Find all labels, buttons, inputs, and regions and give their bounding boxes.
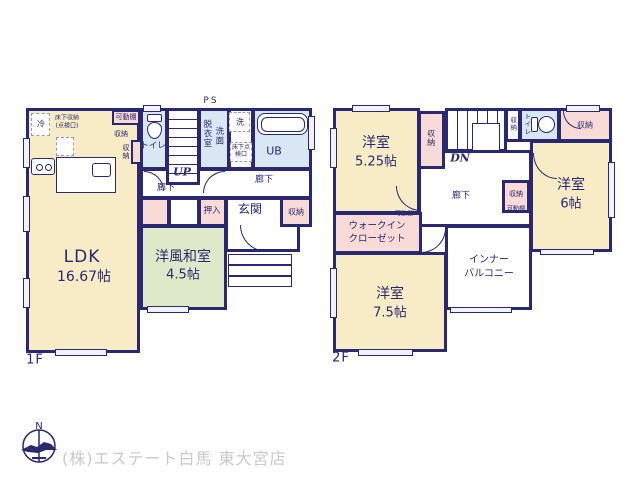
window — [308, 116, 315, 150]
hall-label: 廊下 — [255, 175, 273, 185]
wic-label-line2: クローゼット — [348, 235, 405, 246]
dressing-room-label: 脱衣室 — [201, 120, 211, 149]
balcony-label-line2: バルコニー — [464, 268, 514, 280]
window — [147, 306, 189, 313]
floorplan-image: PS 可動棚 収納 収納 トイレ UP 脱衣室 洗面 洗 床下点検口 UB 廊下… — [0, 0, 640, 480]
bathtub-icon — [257, 113, 308, 135]
oshiire-label: 押入 — [203, 207, 220, 217]
hatch-label: (点検口) — [56, 124, 79, 131]
room75-size: 7.5帖 — [373, 307, 407, 322]
closet-label: 収納 — [122, 144, 130, 160]
closet-label: 収納 — [114, 130, 128, 138]
entrance-step — [228, 265, 292, 276]
shelf-label: 可動棚 — [395, 212, 413, 219]
window — [23, 138, 30, 168]
closet-label: 収納 — [426, 129, 435, 147]
closet-label: 収納 — [508, 117, 515, 132]
window — [23, 278, 30, 308]
underfloor-storage-label: 床下収納 — [55, 116, 79, 123]
room525-name: 洋室 — [362, 135, 390, 151]
ldk-size: 16.67帖 — [57, 269, 111, 285]
closet-label: 収納 — [509, 190, 523, 198]
window — [608, 162, 615, 218]
window — [330, 128, 337, 168]
window — [540, 249, 594, 255]
stove-icon — [31, 158, 55, 175]
compass-icon: N — [18, 420, 60, 466]
stairs-down — [445, 108, 507, 152]
washer-label: 洗 — [236, 117, 244, 126]
hall-label: 廊下 — [157, 183, 175, 193]
hall-label: 廊下 — [452, 191, 470, 201]
window — [358, 349, 413, 356]
refrigerator-label: 冷 — [37, 119, 45, 128]
toilet-tank-icon — [531, 117, 538, 132]
window — [143, 105, 161, 112]
ldk-name: LDK — [64, 248, 101, 268]
entrance-step — [228, 254, 292, 265]
room525-size: 5.25帖 — [355, 156, 397, 171]
floor2-label: 2F — [332, 352, 350, 367]
washitsu-name: 洋風和室 — [155, 249, 211, 265]
underfloor-hatch-label: 床下点検口 — [231, 145, 251, 159]
sink-icon — [92, 163, 111, 177]
window — [352, 105, 390, 112]
toilet-label: トイレ — [140, 142, 166, 152]
compass-north-letter: N — [35, 421, 42, 432]
entrance-step — [228, 276, 292, 287]
floor1-label: 1F — [26, 354, 44, 369]
ps-label: PS — [203, 96, 218, 106]
shelf-label: 可動棚 — [507, 207, 525, 214]
window — [55, 349, 107, 356]
closet-understairs — [140, 197, 170, 227]
hall-nook — [168, 197, 200, 227]
room75-name: 洋室 — [376, 286, 404, 302]
closet-label: 収納 — [288, 207, 304, 216]
closet-label: 収納 — [577, 120, 593, 129]
underfloor-storage-hatch — [56, 137, 74, 156]
company-name: (株)エステート白馬 東大宮店 — [62, 445, 287, 469]
balcony-label-line1: インナー — [469, 254, 509, 266]
washroom-label: 洗面 — [213, 127, 223, 146]
entrance-label: 玄関 — [238, 203, 262, 217]
stairs-down-label: DN — [450, 153, 470, 166]
door-arc — [421, 228, 446, 253]
toilet-tank-icon — [147, 114, 162, 122]
toilet-label: トイレ — [522, 113, 529, 136]
unit-bath-label: UB — [266, 146, 282, 159]
room6-size: 6帖 — [560, 198, 581, 213]
stairs-up-label: UP — [173, 167, 191, 180]
toilet-icon — [538, 116, 555, 133]
balcony-opening — [450, 307, 512, 313]
window — [330, 268, 337, 318]
washitsu-size: 4.5帖 — [166, 269, 200, 284]
wic-label-line1: ウォークイン — [348, 222, 405, 233]
shelf-label: 可動棚 — [116, 113, 137, 121]
room6-name: 洋室 — [557, 177, 585, 193]
window — [23, 196, 30, 232]
